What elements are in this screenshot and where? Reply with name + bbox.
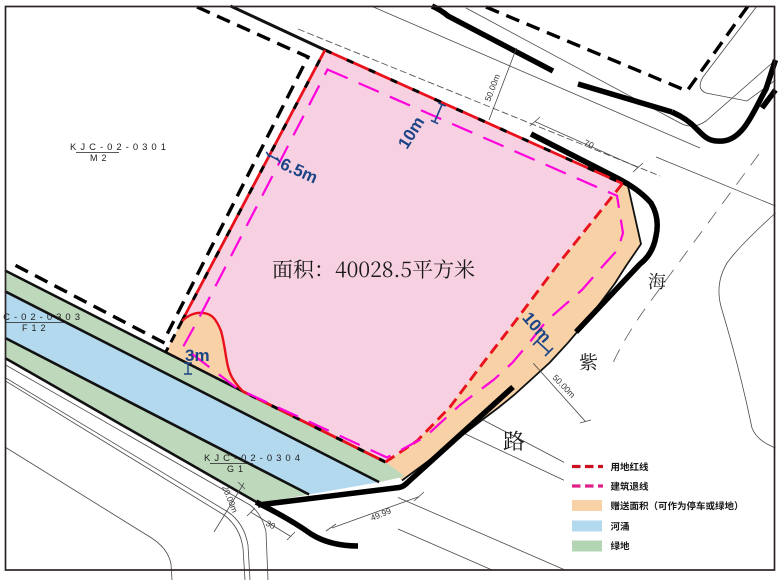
svg-text:KJC-02-0301: KJC-02-0301 — [70, 142, 170, 153]
svg-text:M2: M2 — [90, 153, 111, 163]
svg-text:G1: G1 — [227, 464, 247, 474]
svg-text:KJC-02-0303: KJC-02-0303 — [0, 312, 84, 323]
svg-text:KJC-02-0304: KJC-02-0304 — [204, 453, 304, 464]
svg-text:F12: F12 — [22, 323, 50, 333]
svg-text:3m: 3m — [185, 346, 210, 365]
